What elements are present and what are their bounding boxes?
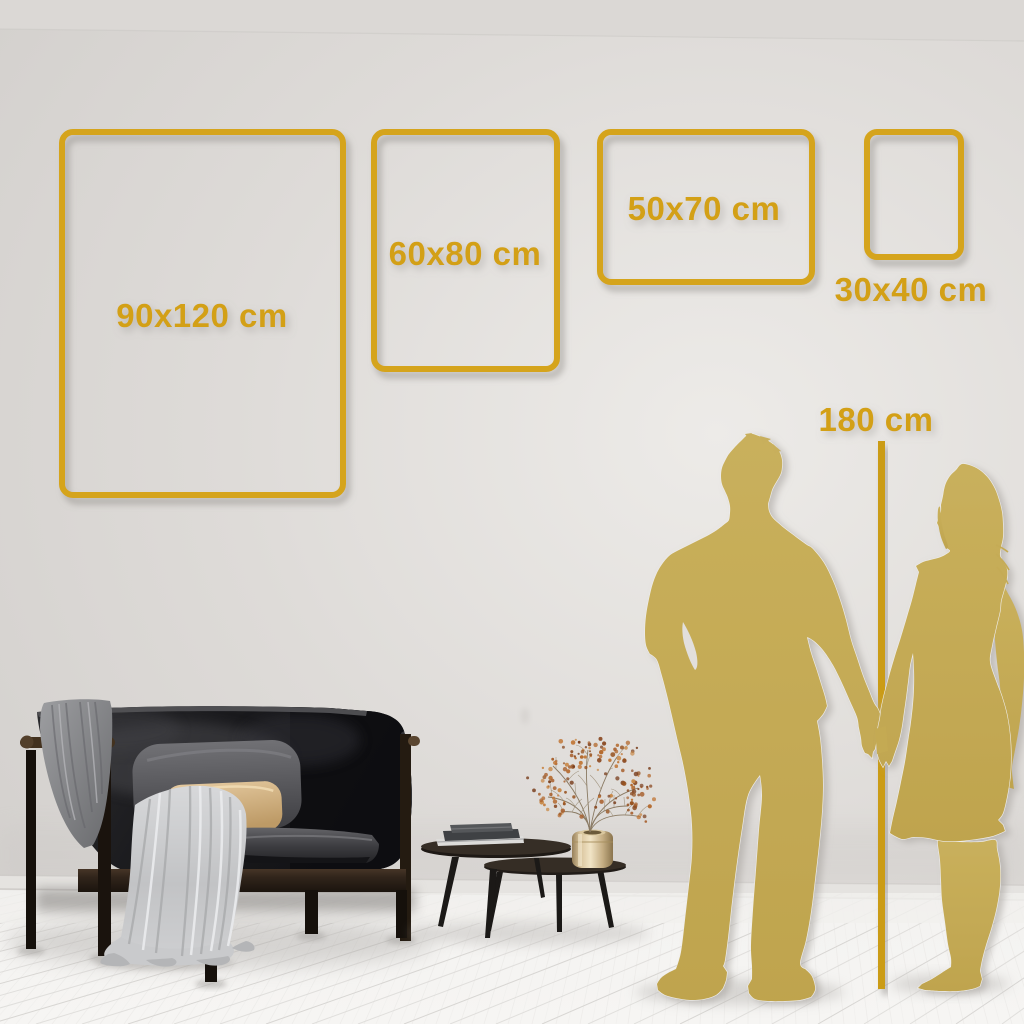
- svg-text:90x120 cm: 90x120 cm: [116, 297, 287, 334]
- svg-text:30x40 cm: 30x40 cm: [835, 271, 988, 308]
- svg-text:180 cm: 180 cm: [819, 401, 934, 438]
- svg-text:50x70 cm: 50x70 cm: [628, 190, 781, 227]
- svg-text:60x80 cm: 60x80 cm: [389, 235, 542, 272]
